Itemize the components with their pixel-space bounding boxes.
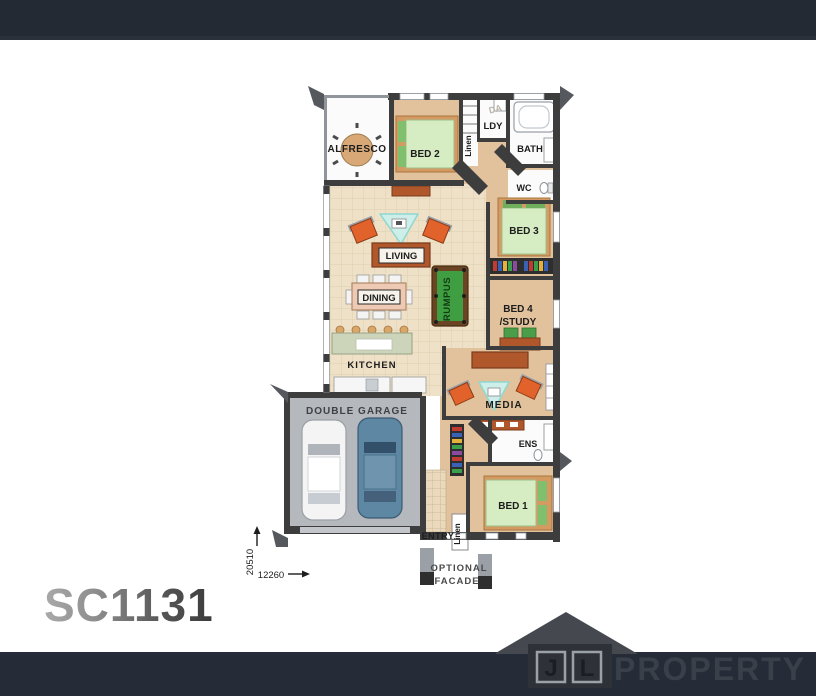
room-label-linen-top: Linen [464, 135, 473, 156]
bed2-bed [396, 116, 458, 172]
room-label-media: MEDIA [485, 400, 522, 411]
room-label-ens: ENS [519, 439, 538, 449]
room-label-dining: DINING [362, 293, 395, 304]
room-label-rumpus: RUMPUS [442, 277, 453, 321]
room-label-living: LIVING [386, 251, 418, 262]
dimension-depth: 20510 [245, 526, 261, 575]
bath-vanity [544, 138, 554, 162]
white-car [302, 420, 346, 520]
room-label-linen-bottom: Linen [453, 523, 462, 544]
room-label-entry: ENTRY [422, 531, 455, 541]
blue-car [358, 418, 402, 518]
label-optional-line2: FACADE [434, 576, 479, 587]
hall-wardrobe [450, 424, 464, 476]
room-label-bed4-line1: BED 4 [503, 304, 533, 315]
sideboard [392, 186, 430, 196]
room-label-bath: BATH [517, 144, 543, 155]
room-label-bed2: BED 2 [410, 149, 440, 160]
room-label-bed1: BED 1 [498, 501, 528, 512]
floorplan-page: { "page": { "header_bg": "#232a33", "foo… [0, 0, 816, 696]
media-sofa [472, 352, 528, 368]
logo-initial-j: J [544, 655, 557, 682]
wc-toilet [540, 183, 553, 194]
brand-logo: J L PROPERTY [496, 610, 812, 692]
kitchen-island [332, 326, 412, 354]
garage-door [300, 527, 410, 533]
plan-code: SC1131 [44, 578, 214, 632]
room-label-garage: DOUBLE GARAGE [306, 406, 408, 417]
room-label-bed4-line2: /STUDY [500, 317, 537, 328]
kitchen-bench [334, 377, 426, 393]
bed3-wardrobe [490, 258, 554, 274]
room-label-bed3: BED 3 [509, 226, 539, 237]
room-label-alfresco: ALFRESCO [328, 144, 387, 155]
porch-tiles [424, 470, 446, 532]
dimension-width-value: 12260 [258, 570, 284, 581]
room-label-kitchen: KITCHEN [347, 360, 396, 371]
dimension-width: 12260 [258, 570, 310, 581]
dimension-depth-value: 20510 [245, 549, 256, 575]
logo-initial-l: L [580, 655, 595, 682]
brand-name: PROPERTY [614, 651, 806, 687]
room-label-wc: WC [517, 183, 532, 193]
label-optional-line1: OPTIONAL [430, 563, 487, 574]
room-label-ldy: LDY [484, 121, 504, 132]
bathtub [514, 102, 554, 132]
